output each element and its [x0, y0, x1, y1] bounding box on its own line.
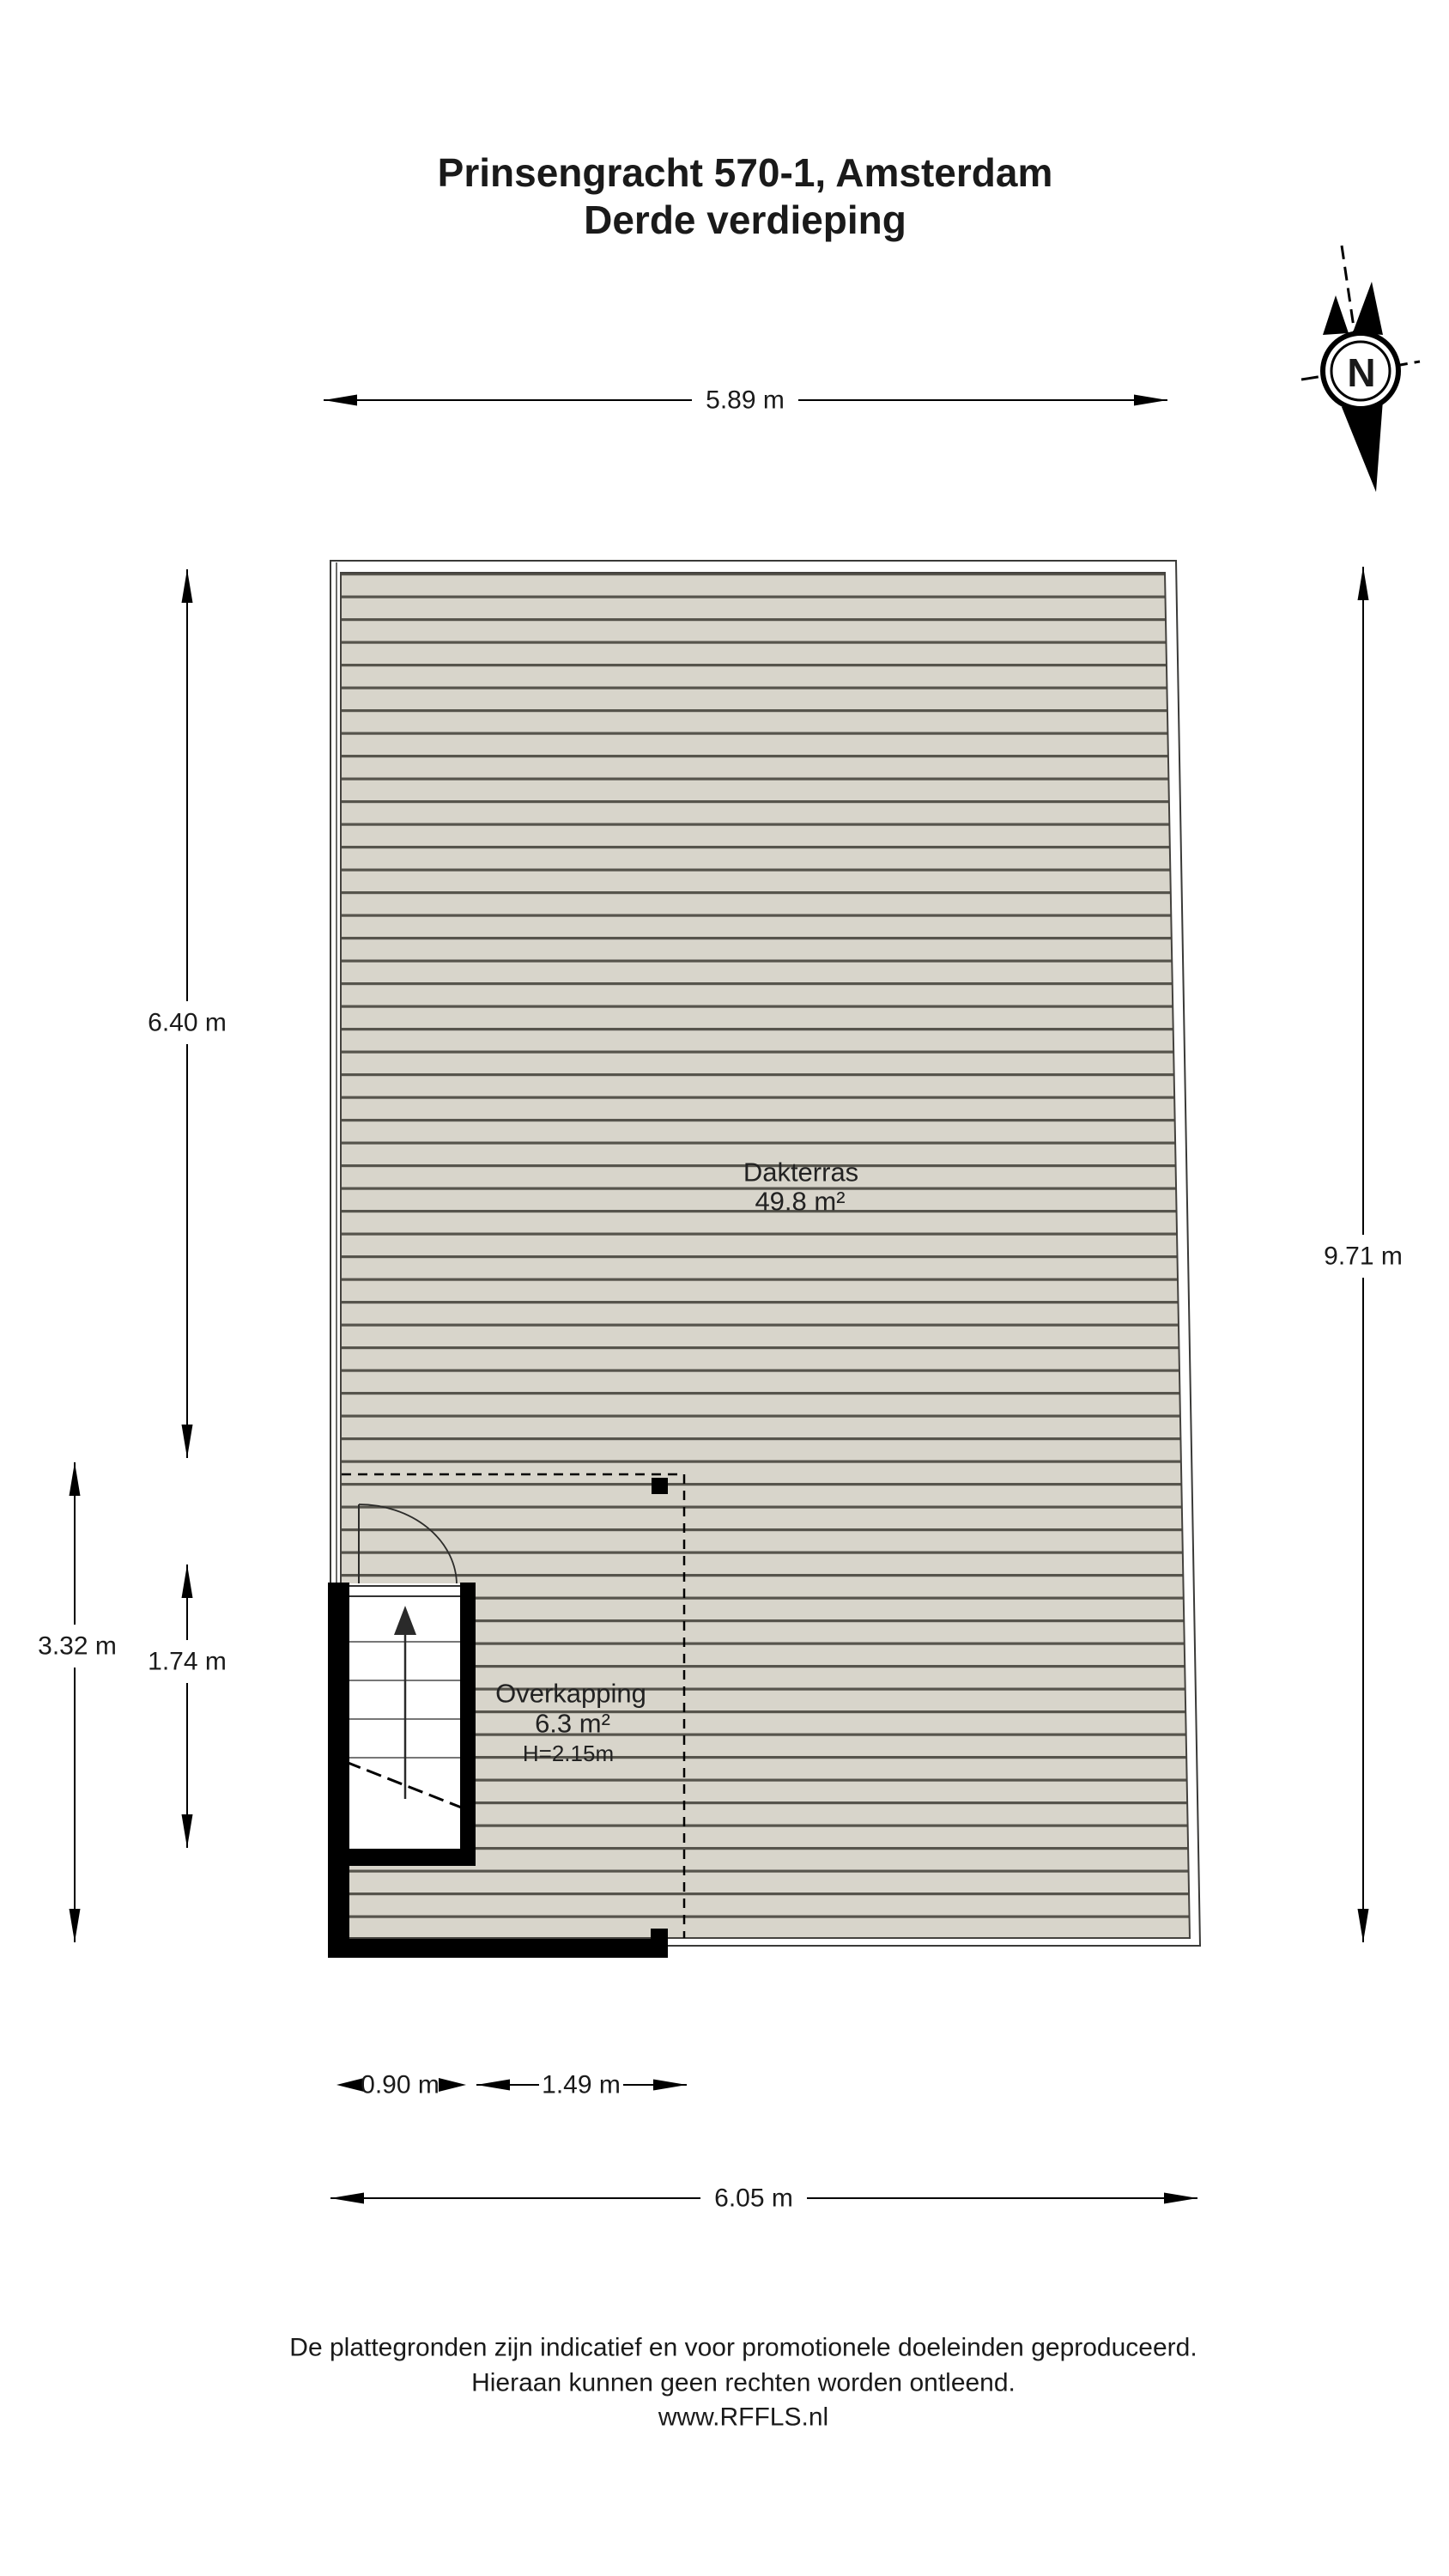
footer-line1: De plattegronden zijn indicatief en voor…	[289, 2334, 1197, 2362]
room-label-overkapping-height: H=2.15m	[523, 1741, 614, 1766]
dimension-right-height: 9.71 m	[1303, 567, 1423, 1942]
dimension-right-height-label: 9.71 m	[1324, 1242, 1403, 1271]
dimension-bottom-stairs-label: 0.90 m	[361, 2071, 440, 2099]
arrowhead-right	[439, 2078, 466, 2092]
dimension-top-width-label: 5.89 m	[706, 386, 785, 415]
compass: N	[1301, 246, 1420, 492]
compass-north-label: N	[1347, 350, 1375, 395]
room-label-dakterras-area: 49.8 m²	[755, 1187, 845, 1217]
footer-line2: Hieraan kunnen geen rechten worden ontle…	[471, 2369, 1016, 2397]
dimension-left-lower-label: 1.74 m	[148, 1648, 227, 1676]
floorplan-svg: Prinsengracht 570-1, Amsterdam Derde ver…	[0, 0, 1449, 2576]
dimension-top-width: 5.89 m	[324, 380, 1167, 421]
floorplan-page: Prinsengracht 570-1, Amsterdam Derde ver…	[0, 0, 1449, 2576]
dimension-bottom-stairs: 0.90 m	[336, 2071, 466, 2099]
dimension-left-outer-label: 3.32 m	[38, 1632, 117, 1661]
dimension-left-upper: 6.40 m	[130, 569, 244, 1458]
dimension-bottom-inner-label: 1.49 m	[542, 2071, 621, 2099]
stairwell-wall-bottom-inner	[341, 1849, 476, 1866]
compass-needle-south	[1342, 400, 1383, 492]
dimension-left-upper-label: 6.40 m	[148, 1009, 227, 1037]
dimension-bottom-inner: 1.49 m	[476, 2064, 687, 2105]
room-label-overkapping-name: Overkapping	[495, 1679, 646, 1709]
compass-needle-north-wing-right	[1353, 282, 1383, 335]
footer-line3: www.RFFLS.nl	[658, 2403, 828, 2432]
overkapping-post-marker	[652, 1478, 668, 1494]
terrace-wall-step	[651, 1929, 668, 1941]
stairwell-wall-right	[460, 1583, 476, 1866]
stairwell-wall-left	[328, 1583, 349, 1958]
page-title-line1: Prinsengracht 570-1, Amsterdam	[438, 150, 1053, 195]
compass-needle-north-wing-left	[1323, 295, 1349, 335]
room-label-dakterras-name: Dakterras	[743, 1157, 858, 1188]
terrace-wall-bottom	[328, 1939, 668, 1958]
page-title-line2: Derde verdieping	[584, 197, 906, 242]
dimension-left-lower: 1.74 m	[130, 1564, 244, 1848]
room-label-overkapping-area: 6.3 m²	[535, 1709, 610, 1739]
dimension-bottom-width: 6.05 m	[330, 2178, 1197, 2219]
dimension-bottom-width-label: 6.05 m	[714, 2184, 793, 2213]
dimension-left-outer: 3.32 m	[21, 1462, 134, 1942]
